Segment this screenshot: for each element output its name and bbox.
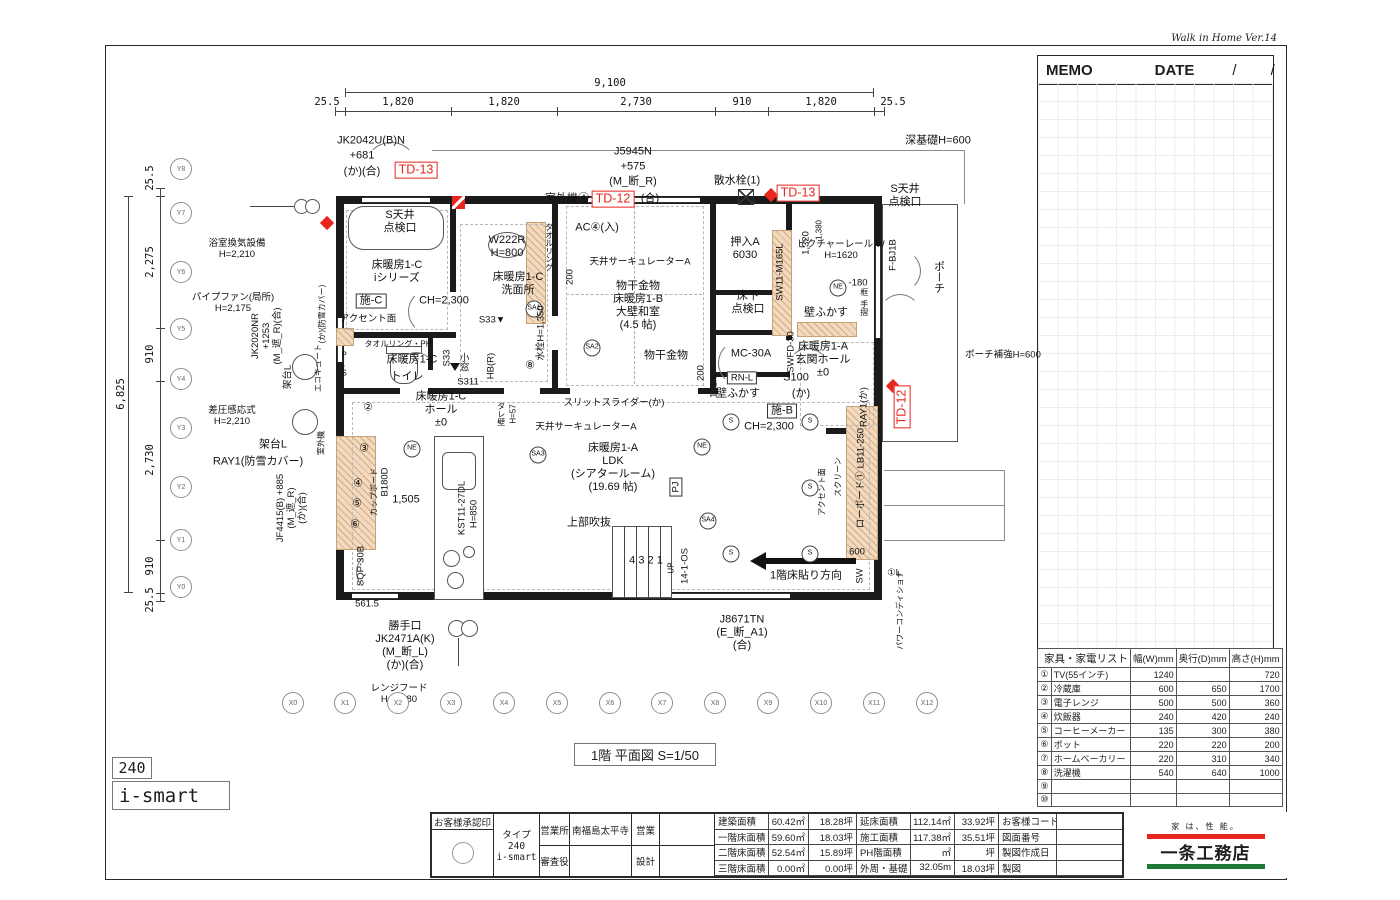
sales-value xyxy=(660,814,715,845)
area-row: 施工面積117.38㎡35.51坪 xyxy=(857,830,999,846)
plan-label: CH=2,300 xyxy=(419,295,469,308)
plan-label: NE xyxy=(404,441,421,458)
outdoor-unit xyxy=(292,409,318,435)
software-version-label: Walk in Home Ver.14 xyxy=(1171,33,1277,44)
furniture-cell: 540 xyxy=(1131,766,1177,780)
plan-label: 1,380 xyxy=(814,220,823,240)
plan-label: ⑤ xyxy=(352,498,362,511)
furniture-col-height: 高さ(H)mm xyxy=(1229,649,1282,668)
area-cell: 33.92坪 xyxy=(955,814,999,829)
furniture-cell xyxy=(1229,780,1282,794)
plan-label: 561.5 xyxy=(355,598,379,609)
area-cell: 112.14㎡ xyxy=(911,814,955,829)
dimension-label: 25.5 xyxy=(144,165,156,190)
area-row: 外周・基礎32.05m18.03坪 xyxy=(857,861,999,877)
furniture-cell: TV(55インチ) xyxy=(1051,668,1130,682)
plan-label: TD-12 xyxy=(592,191,635,208)
stove-burner xyxy=(463,546,475,558)
memo-panel-header: MEMO DATE / / xyxy=(1037,55,1274,85)
plan-label: S xyxy=(723,414,740,431)
area-cell: 図面番号 xyxy=(999,830,1057,845)
plan-label: トイレ xyxy=(391,371,424,384)
grid-bubble: Y4 xyxy=(170,368,192,390)
dimension-tick xyxy=(124,592,133,593)
grid-bubble: X6 xyxy=(599,692,621,714)
dimension-tick xyxy=(345,107,346,116)
furniture-cell: 冷蔵庫 xyxy=(1051,682,1130,696)
area-cell: 117.38㎡ xyxy=(911,830,955,845)
furniture-row: ⑨ xyxy=(1038,780,1283,794)
furniture-cell: 1700 xyxy=(1229,682,1282,696)
plan-label: 架台L xyxy=(282,365,293,389)
dimension-label: 25.5 xyxy=(144,587,156,612)
furniture-cell: ① xyxy=(1038,668,1052,682)
furniture-cell: 720 xyxy=(1229,668,1282,682)
plan-label: S33 xyxy=(441,350,452,367)
area-cell: 建築面積 xyxy=(715,814,769,829)
memo-label: MEMO xyxy=(1046,62,1093,79)
grid-bubble: Y5 xyxy=(170,318,192,340)
dimension-tick xyxy=(873,88,874,97)
dimension-label: 910 xyxy=(144,557,156,576)
furniture-cell: 310 xyxy=(1176,752,1229,766)
dimension-tick xyxy=(874,107,875,116)
approval-stamp-area xyxy=(432,830,494,876)
examiner-label: 審査役 xyxy=(540,845,570,876)
plan-label: 101.5 xyxy=(708,374,719,398)
plan-label: ポーチ xyxy=(932,261,945,294)
dimension-label: 2,275 xyxy=(144,246,156,278)
area-row: PH階面積㎡坪 xyxy=(857,845,999,861)
plan-label: RAY1(防雪カバー) xyxy=(213,456,303,469)
plan-label: (か) xyxy=(792,388,810,401)
plan-label: 押入A 6030 xyxy=(730,236,759,262)
plan-label: 床暖房1-C 洗面所 xyxy=(493,271,544,297)
plan-label: 壁ふかす xyxy=(716,388,760,401)
plan-label: パワーコンディショナ xyxy=(895,570,904,649)
furniture-cell xyxy=(1051,780,1130,794)
toilet-corner-zone xyxy=(336,328,354,346)
red-hatch-marker-icon xyxy=(452,196,465,209)
furniture-cell xyxy=(1229,793,1282,807)
grid-bubble: Y2 xyxy=(170,476,192,498)
furniture-cell: 135 xyxy=(1131,724,1177,738)
plan-label: J5945N xyxy=(614,146,652,159)
plan-label: SW11-M165L xyxy=(774,243,785,300)
furniture-cell xyxy=(1176,780,1229,794)
grid-bubble: Y0 xyxy=(170,576,192,598)
furniture-cell: ポット xyxy=(1051,738,1130,752)
plan-label: 施-C xyxy=(356,294,387,309)
area-row: 延床面積112.14㎡33.92坪 xyxy=(857,814,999,830)
furniture-row: ⑤コーヒーメーカー135300380 xyxy=(1038,724,1283,738)
window-jk2042u xyxy=(362,197,430,203)
design-value xyxy=(660,845,715,876)
dimension-label: 1,820 xyxy=(488,96,520,108)
dimension-tick xyxy=(156,593,165,594)
furniture-table: 家具・家電リスト 幅(W)mm 奥行(D)mm 高さ(H)mm ①TV(55イン… xyxy=(1037,648,1283,807)
date-label: DATE xyxy=(1155,62,1195,79)
entry-furred-wall-zone xyxy=(797,322,857,337)
plan-label: 勝手口 JK2471A(K) (M_断_L) (か)(合) xyxy=(375,620,434,672)
area-cell: 59.60㎡ xyxy=(769,830,809,845)
area-cell xyxy=(1057,861,1124,876)
grid-bubble: X11 xyxy=(863,692,885,714)
dimension-label: 1,820 xyxy=(805,96,837,108)
plan-label: 200 xyxy=(695,365,706,381)
furniture-cell: 220 xyxy=(1176,738,1229,752)
area-row: 二階床面積52.54㎡15.89坪 xyxy=(715,845,857,861)
plan-label: S xyxy=(802,414,819,431)
area-row: 一階床面積59.60㎡18.03坪 xyxy=(715,830,857,846)
plan-title: 1階 平面図 S=1/50 xyxy=(574,743,716,766)
wall-washitsu-east xyxy=(710,196,716,394)
entry-door-arc xyxy=(879,294,921,336)
date-slash-2: / xyxy=(1271,62,1275,79)
furniture-cell: ② xyxy=(1038,682,1052,696)
area-cell: 二階床面積 xyxy=(715,845,769,860)
dimension-tick xyxy=(156,328,165,329)
plan-label: SA2 xyxy=(584,340,601,357)
plan-label: B180D xyxy=(379,467,390,496)
dim-line-left-total xyxy=(128,196,129,593)
area-cell: 60.42㎡ xyxy=(769,814,809,829)
grid-bubble: X4 xyxy=(493,692,515,714)
area-cell: 延床面積 xyxy=(857,814,911,829)
area-row: 建築面積60.42㎡18.28坪 xyxy=(715,814,857,830)
plan-label: S xyxy=(802,546,819,563)
plan-label: 水栓H=1,350 xyxy=(535,305,546,360)
furniture-cell: 1240 xyxy=(1131,668,1177,682)
grid-bubble: Y1 xyxy=(170,529,192,551)
stair-tread xyxy=(624,526,625,598)
plan-label: 室外機④ xyxy=(545,193,589,206)
plan-label: TD-13 xyxy=(777,185,820,202)
wall-bath-east xyxy=(450,196,456,292)
plan-label: ピクチャーレール W H=1620 xyxy=(797,239,885,261)
furniture-cell xyxy=(1176,793,1229,807)
plan-label: (合) xyxy=(641,193,659,206)
grid-bubble: Y6 xyxy=(170,261,192,283)
plan-label: スクリーン xyxy=(833,457,842,497)
furniture-cell: 240 xyxy=(1229,710,1282,724)
plan-label: 床暖房1-C ホール ±0 xyxy=(416,391,467,430)
deep-foundation-line xyxy=(432,150,965,151)
area-cell: 外周・基礎 xyxy=(857,861,911,876)
furniture-cell: 420 xyxy=(1176,710,1229,724)
furniture-cell: ⑧ xyxy=(1038,766,1052,780)
area-cell xyxy=(1057,845,1124,860)
plan-label: 床暖房1-A LDK (シアタールーム) (19.69 帖) xyxy=(571,442,655,494)
plan-label: JK2042U(B)N xyxy=(337,135,405,148)
plan-label: エコキュート xyxy=(313,344,322,392)
plan-label: ローボード① LB11-250 xyxy=(855,428,866,528)
plan-label: UP xyxy=(666,562,675,573)
fan-duct-line xyxy=(250,206,294,207)
porch-step-line xyxy=(884,540,1004,541)
furniture-cell: 洗濯機 xyxy=(1051,766,1130,780)
furniture-cell: 240 xyxy=(1131,710,1177,724)
area-row: 図面番号 xyxy=(999,830,1124,846)
furniture-row: ⑥ポット220220200 xyxy=(1038,738,1283,752)
plan-label: 上部吹抜 xyxy=(567,517,611,530)
area-cell: 18.03坪 xyxy=(809,830,857,845)
stove-burner xyxy=(447,572,464,589)
plan-label: KST11-27DL xyxy=(456,481,467,535)
dimension-tick xyxy=(156,540,165,541)
furniture-cell: 600 xyxy=(1131,682,1177,696)
plan-label: HB(R) xyxy=(485,353,496,379)
plan-label: MC-30A xyxy=(731,348,771,361)
furniture-cell xyxy=(1051,793,1130,807)
furniture-cell: ③ xyxy=(1038,696,1052,710)
plan-label: TD-12 xyxy=(894,386,911,429)
area-row: 三階床面積0.00㎡0.00坪 xyxy=(715,861,857,877)
plan-label: JF4415(B) +885 (M_遮_R) (か)(合) xyxy=(275,474,309,542)
plan-label: +681 xyxy=(350,150,375,163)
drawing-info-column: お客様コード図面番号製図作成日製図 xyxy=(999,814,1124,876)
area-cell: 35.51坪 xyxy=(955,830,999,845)
furniture-table-title: 家具・家電リスト xyxy=(1038,649,1131,668)
area-cell: 18.28坪 xyxy=(809,814,857,829)
plan-label: 床下 点検口 xyxy=(732,290,765,316)
dimension-label: 6,825 xyxy=(115,378,127,410)
plan-label: 床暖房1-C iシリーズ xyxy=(372,259,423,285)
area-cell: 32.05m xyxy=(911,861,955,876)
furniture-cell: ⑤ xyxy=(1038,724,1052,738)
plan-label: (M_断_R) xyxy=(609,176,657,189)
plan-label: ③ xyxy=(359,443,369,456)
rangehood-fan-icon xyxy=(461,620,478,637)
plan-label: S天井 点検口 xyxy=(889,183,922,209)
plan-label: アクセント面 xyxy=(340,313,397,324)
area-cell: 三階床面積 xyxy=(715,861,769,876)
plan-label: W222R H=800 xyxy=(489,234,526,260)
plan-label: ⑥ xyxy=(350,519,360,532)
grid-bubble: X7 xyxy=(651,692,673,714)
duct-line xyxy=(458,638,459,666)
grid-bubble: X0 xyxy=(282,692,304,714)
plan-label: S xyxy=(802,480,819,497)
furniture-cell: ⑩ xyxy=(1038,793,1052,807)
design-label: 設計 xyxy=(632,845,660,876)
plan-label: 天井サーキュレーターA xyxy=(589,256,690,267)
area-cell xyxy=(1057,814,1124,829)
dimension-tick xyxy=(124,196,133,197)
dim-line-top-segments xyxy=(335,111,884,112)
area-row: 製図 xyxy=(999,861,1124,877)
area-cell: 製図作成日 xyxy=(999,845,1057,860)
logo-green-bar xyxy=(1147,864,1265,869)
plan-label: H=850 xyxy=(468,500,479,528)
plan-label: タレ壁 xyxy=(496,402,505,426)
plan-label: 物干金物 xyxy=(644,350,688,363)
dimension-label: 910 xyxy=(733,96,752,108)
divider xyxy=(540,845,632,846)
plan-label: タオルリング xyxy=(544,223,553,271)
plan-label: 差圧感応式 H=2,210 xyxy=(208,405,256,427)
dimension-label: 25.5 xyxy=(880,96,905,108)
approval-label: お客様承認印 xyxy=(432,814,494,830)
plan-label: S天井 点検口 xyxy=(384,209,417,235)
area-cell: 15.89坪 xyxy=(809,845,857,860)
furniture-cell: 650 xyxy=(1176,682,1229,696)
dimension-tick xyxy=(345,88,346,97)
plan-label: 14-1-OS xyxy=(679,548,690,584)
furniture-cell: ⑨ xyxy=(1038,780,1052,794)
furniture-row: ⑩ xyxy=(1038,793,1283,807)
furniture-cell: 電子レンジ xyxy=(1051,696,1130,710)
wall-south xyxy=(336,592,882,600)
area-cell: お客様コード xyxy=(999,814,1057,829)
furniture-cell: ⑦ xyxy=(1038,752,1052,766)
furniture-row: ④炊飯器240420240 xyxy=(1038,710,1283,724)
plan-label: (か)(合) xyxy=(344,166,381,179)
plan-label: 物干金物 床暖房1-B 大壁和室 (4.5 帖) xyxy=(613,280,663,332)
porch-step-line xyxy=(1004,470,1005,541)
area-cell: ㎡ xyxy=(911,845,955,860)
floor-direction-arrowhead xyxy=(750,552,766,570)
area-row: 製図作成日 xyxy=(999,845,1124,861)
dimension-tick xyxy=(768,107,769,116)
areas-column-a: 建築面積60.42㎡18.28坪一階床面積59.60㎡18.03坪二階床面積52… xyxy=(715,814,857,876)
plan-label: 4 3 2 1 xyxy=(629,555,663,568)
furniture-col-width: 幅(W)mm xyxy=(1131,649,1177,668)
porch-step-line xyxy=(884,505,1004,506)
areas-column-b: 延床面積112.14㎡33.92坪施工面積117.38㎡35.51坪PH階面積㎡… xyxy=(857,814,999,876)
furniture-cell: ④ xyxy=(1038,710,1052,724)
plan-label: 框 xyxy=(859,288,868,296)
sprinkler-valve-icon xyxy=(738,189,754,205)
dimension-label: 2,730 xyxy=(620,96,652,108)
grid-bubble: Y3 xyxy=(170,417,192,439)
dimension-tick xyxy=(156,381,165,382)
furniture-col-depth: 奥行(D)mm xyxy=(1176,649,1229,668)
plan-label: ⑧ xyxy=(525,360,535,373)
plan-label: S311 xyxy=(457,376,478,387)
plan-label: -180 xyxy=(848,277,867,288)
porch-step-line xyxy=(884,470,1004,471)
plan-label: TD-13 xyxy=(395,162,438,179)
grid-bubble: X9 xyxy=(757,692,779,714)
plan-label: P.S xyxy=(339,351,348,378)
area-row: お客様コード xyxy=(999,814,1124,830)
bath-fan-icon xyxy=(305,199,320,214)
plan-label: 室外機 xyxy=(316,431,325,455)
grid-bubble: X3 xyxy=(440,692,462,714)
date-slash-1: / xyxy=(1232,62,1236,79)
furniture-row: ③電子レンジ500500360 xyxy=(1038,696,1283,710)
plan-label: ④ xyxy=(353,478,363,491)
grid-bubble: X8 xyxy=(704,692,726,714)
dimension-tick xyxy=(156,601,165,602)
plan-label: SW xyxy=(854,568,865,583)
plan-label: 散水栓(1) xyxy=(714,175,760,188)
plan-label: 小窓 xyxy=(457,353,468,372)
furniture-cell: 360 xyxy=(1229,696,1282,710)
office-value: 南福島太平寺 xyxy=(570,814,632,845)
grid-bubble: X5 xyxy=(546,692,568,714)
plan-label: SA4 xyxy=(700,513,717,530)
dimension-tick xyxy=(715,107,716,116)
plan-label: タオルリング・PH xyxy=(364,339,431,348)
furniture-row: ⑦ホームベーカリー220310340 xyxy=(1038,752,1283,766)
floor-plan-sheet: { "app": {"version_label": "Walk in Home… xyxy=(0,0,1400,900)
furniture-cell: 220 xyxy=(1131,752,1177,766)
furniture-cell: 300 xyxy=(1176,724,1229,738)
logo-slogan: 家 は、性 能。 xyxy=(1171,821,1239,832)
area-cell: 製図 xyxy=(999,861,1057,876)
area-cell xyxy=(1057,830,1124,845)
plan-label: 手摺 xyxy=(859,300,868,316)
area-cell: 18.03坪 xyxy=(955,861,999,876)
type-label: タイプ xyxy=(502,827,531,841)
plan-label: 架台L xyxy=(259,439,287,452)
dimension-label: 2,730 xyxy=(144,444,156,476)
entry-door-arc xyxy=(879,250,921,292)
grid-bubble: X2 xyxy=(387,692,409,714)
dimension-tick xyxy=(451,107,452,116)
company-logo: 家 は、性 能。 一条工務店 xyxy=(1122,812,1287,878)
furniture-cell: 340 xyxy=(1229,752,1282,766)
plan-label: SQP-30B xyxy=(355,546,366,586)
plan-label: 浴室換気設備 H=2,210 xyxy=(208,238,265,260)
plan-label: 天井サーキュレーターA xyxy=(535,421,636,432)
grid-bubble: Y7 xyxy=(170,202,192,224)
furniture-cell: コーヒーメーカー xyxy=(1051,724,1130,738)
plan-label: ポーチ補強H=600 xyxy=(965,349,1041,360)
area-cell: 一階床面積 xyxy=(715,830,769,845)
area-cell: 0.00坪 xyxy=(809,861,857,876)
type-value: 240 xyxy=(508,841,525,852)
plan-label: S33▼ xyxy=(479,314,505,325)
plan-label: 深基礎H=600 xyxy=(905,135,971,148)
plan-label: 200 xyxy=(564,269,575,285)
furniture-cell: 1000 xyxy=(1229,766,1282,780)
furniture-cell: 500 xyxy=(1131,696,1177,710)
furniture-cell: 220 xyxy=(1131,738,1177,752)
dimension-tick xyxy=(557,107,558,116)
plan-label: NE xyxy=(694,439,711,456)
examiner-value xyxy=(570,845,632,876)
plan-label: 壁ふかす xyxy=(804,307,848,320)
furniture-row: ⑧洗濯機5406401000 xyxy=(1038,766,1283,780)
dimension-label: 910 xyxy=(144,345,156,364)
area-cell: 施工面積 xyxy=(857,830,911,845)
plan-label: H=57 xyxy=(508,404,517,423)
plan-label: AC④(入) xyxy=(575,222,618,235)
furniture-cell: 炊飯器 xyxy=(1051,710,1130,724)
plan-label: カップボード xyxy=(369,468,378,516)
area-cell: 坪 xyxy=(955,845,999,860)
plan-label: RAY1(か) xyxy=(858,387,869,427)
furniture-cell: 380 xyxy=(1229,724,1282,738)
dimension-label: 25.5 xyxy=(314,96,339,108)
area-cell: 0.00㎡ xyxy=(769,861,809,876)
wall-washitsu-south xyxy=(558,388,570,394)
logo-company-name: 一条工務店 xyxy=(1161,839,1251,864)
wall-hall-north xyxy=(540,388,558,394)
grid-bubble: X12 xyxy=(916,692,938,714)
plan-label: スリットスライダー(か) xyxy=(564,397,665,408)
dimension-tick xyxy=(884,107,885,116)
plan-label: (か)(防雪カバー) xyxy=(317,285,326,344)
dimension-label: 1,820 xyxy=(382,96,414,108)
grid-bubble: Y8 xyxy=(170,158,192,180)
wall-bath-south xyxy=(336,332,456,338)
dim-line-top-total xyxy=(345,92,874,93)
plan-label: 600 xyxy=(849,546,865,557)
